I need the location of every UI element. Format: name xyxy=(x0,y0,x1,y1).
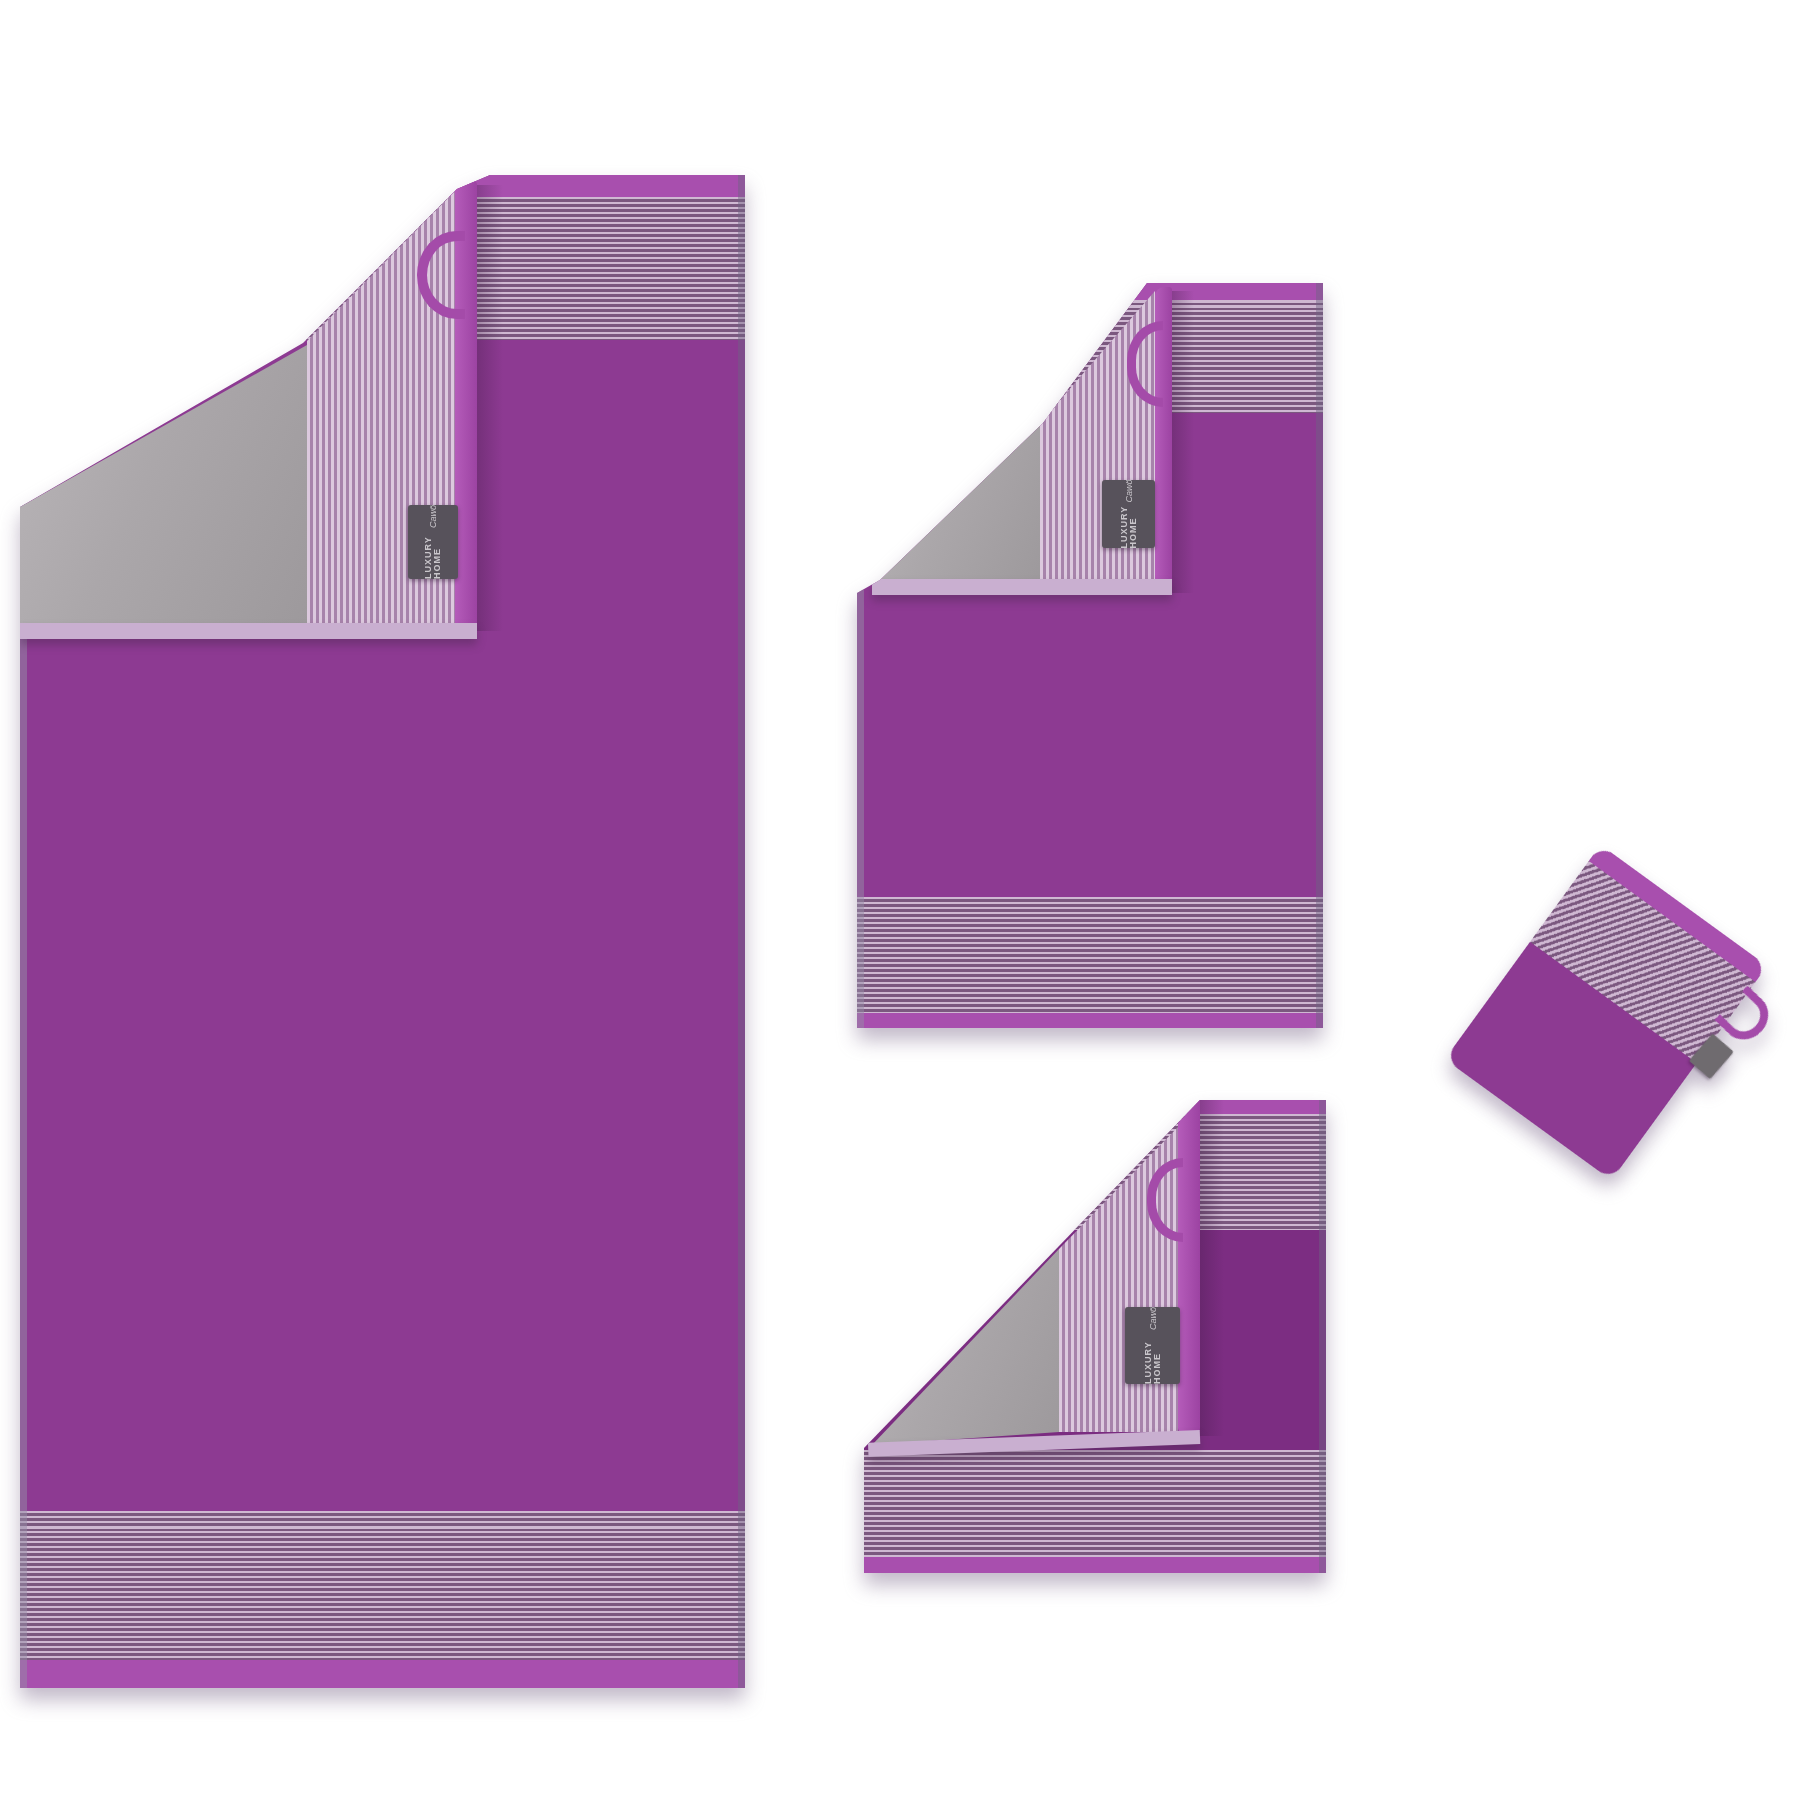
product-photo-canvas: LUXURY HOME Cawö LUXURY HOME Cawö xyxy=(0,0,1800,1800)
brand-label: LUXURY HOME Cawö xyxy=(1125,1307,1180,1384)
hand-towel-top-hem xyxy=(857,283,1323,300)
guest-towel-fold-shadow xyxy=(1200,1100,1224,1436)
bath-towel-left-selvage xyxy=(20,175,27,1688)
brand-label-collection: LUXURY HOME xyxy=(1120,506,1138,549)
hand-towel-front: LUXURY HOME Cawö xyxy=(857,283,1323,1028)
hand-towel-fold-grey-reverse xyxy=(877,425,1040,587)
brand-label-text: LUXURY HOME Cawö xyxy=(424,505,442,579)
hand-towel: LUXURY HOME Cawö xyxy=(857,283,1323,1028)
hand-towel-right-selvage xyxy=(1316,283,1323,1028)
bath-towel-fold-shadow xyxy=(477,185,503,631)
bath-towel-top-hem xyxy=(20,175,745,197)
brand-label-brand: Cawö xyxy=(1124,480,1133,503)
guest-towel-fold-grey-reverse xyxy=(872,1249,1059,1445)
brand-label-collection: LUXURY HOME xyxy=(1144,1333,1162,1384)
hand-towel-left-selvage xyxy=(857,283,864,1028)
hand-towel-bottom-stripe-band xyxy=(857,897,1323,1013)
bath-towel-fold-grey-reverse xyxy=(20,343,307,627)
guest-towel-right-selvage xyxy=(1319,1100,1326,1573)
brand-label: LUXURY HOME Cawö xyxy=(408,505,458,579)
bath-towel-bottom-stripe-band xyxy=(20,1511,745,1660)
bath-towel-front: LUXURY HOME Cawö xyxy=(20,175,745,1688)
guest-towel-top-hem xyxy=(864,1100,1326,1114)
hand-towel-bottom-hem xyxy=(857,1013,1323,1028)
guest-towel-front: LUXURY HOME Cawö xyxy=(864,1100,1326,1573)
brand-label-brand: Cawö xyxy=(429,505,438,528)
brand-label-text: LUXURY HOME Cawö xyxy=(1120,480,1138,549)
bath-towel-fold-hem xyxy=(20,623,477,639)
hand-towel-fold-shadow xyxy=(1172,291,1194,593)
hand-towel-fold-hem xyxy=(872,579,1172,595)
guest-towel-bottom-hem xyxy=(864,1557,1326,1573)
guest-towel: LUXURY HOME Cawö xyxy=(864,1100,1326,1573)
guest-towel-bottom-stripe-band xyxy=(864,1450,1326,1557)
brand-label-brand: Cawö xyxy=(1148,1307,1157,1330)
wash-mitt xyxy=(1445,845,1767,1180)
bath-towel: LUXURY HOME Cawö xyxy=(20,175,745,1688)
bath-towel-bottom-hem xyxy=(20,1660,745,1688)
wash-mitt-body xyxy=(1445,845,1767,1180)
brand-label: LUXURY HOME Cawö xyxy=(1102,480,1155,548)
brand-label-text: LUXURY HOME Cawö xyxy=(1144,1307,1162,1384)
guest-towel-fold-binding xyxy=(1178,1100,1200,1432)
brand-label-collection: LUXURY HOME xyxy=(424,531,442,579)
bath-towel-right-selvage xyxy=(738,175,745,1688)
